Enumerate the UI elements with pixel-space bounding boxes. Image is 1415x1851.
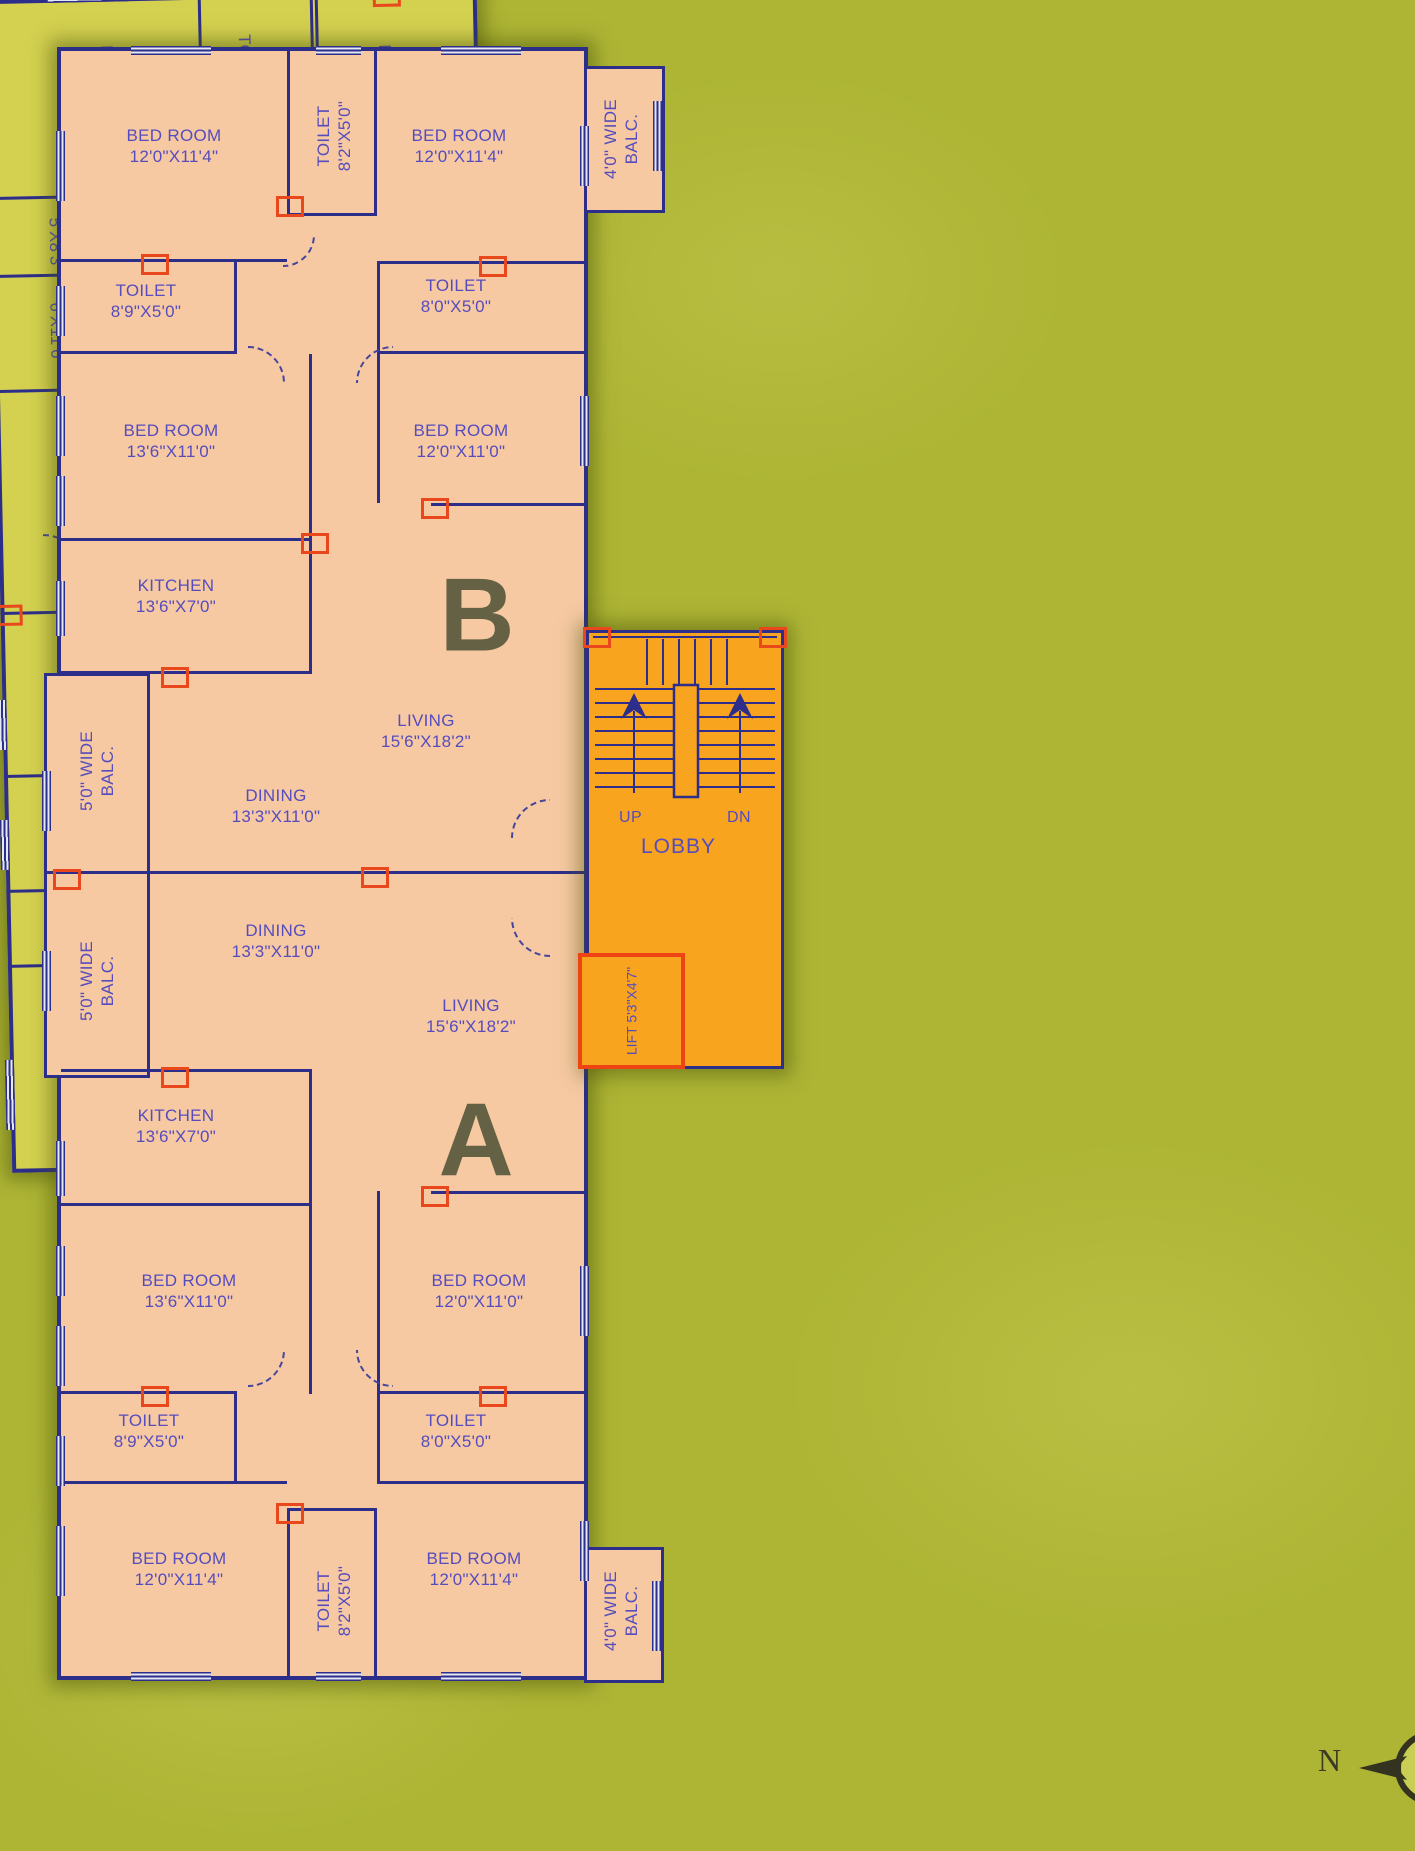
wall [61, 351, 234, 354]
room-label: BED ROOM12'0"X11'4" [427, 1548, 522, 1591]
room-label: BED ROOM13'6"X11'0" [142, 1270, 237, 1313]
room-label: BED ROOM12'0"X11'4" [127, 125, 222, 168]
window-icon [56, 1526, 65, 1596]
wall [47, 871, 584, 874]
lift-label: LIFT 5'3"X4'7" [623, 967, 640, 1055]
room-label: 5'0" WIDEBALC. [76, 731, 119, 811]
window-icon [56, 1246, 65, 1296]
window-icon [0, 820, 10, 870]
window-icon [56, 396, 65, 456]
window-icon [56, 1141, 65, 1196]
window-icon [316, 1672, 361, 1681]
stairs-up-label: UP [619, 809, 642, 827]
window-icon [0, 700, 7, 750]
door-swing-icon [211, 1313, 285, 1387]
door-swing-icon [211, 346, 285, 420]
wall [61, 538, 311, 541]
room-label: BED ROOM13'6"X11'0" [124, 420, 219, 463]
window-icon [5, 1060, 15, 1130]
wall [61, 1203, 311, 1206]
window-icon [56, 286, 65, 336]
wall [431, 503, 584, 506]
window-icon [56, 1326, 65, 1386]
column-marker [361, 867, 389, 888]
window-icon [441, 1672, 521, 1681]
room-label: 5'0" WIDEBALC. [76, 941, 119, 1021]
column-marker [276, 1503, 304, 1524]
wall [309, 1069, 312, 1394]
staircase-icon [589, 633, 781, 808]
window-icon [580, 1521, 589, 1581]
window-icon [580, 396, 589, 466]
wall [374, 51, 377, 216]
room-label: LIVING15'6"X18'2" [426, 995, 516, 1038]
room-label: KITCHEN13'6"X7'0" [136, 1105, 216, 1148]
room-label: DINING13'3"X11'0" [232, 920, 321, 963]
door-swing-icon [511, 799, 589, 877]
north-label: N [1318, 1742, 1341, 1779]
room-label: TOILET8'0"X5'0" [421, 275, 491, 318]
room-label: 4'0" WIDEBALC. [600, 1571, 643, 1651]
window-icon [652, 1581, 661, 1651]
wall [377, 1481, 584, 1484]
window-icon [42, 771, 51, 831]
wall [377, 1191, 380, 1484]
window-icon [56, 581, 65, 636]
unit-letter-b: B [439, 557, 514, 676]
room-label: TOILET8'9"X5'0" [111, 280, 181, 323]
lift-shaft: LIFT 5'3"X4'7" [578, 953, 685, 1069]
column-marker [301, 533, 329, 554]
column-marker [141, 254, 169, 275]
wall [309, 354, 312, 674]
column-marker [759, 627, 787, 648]
room-label: LIVING15'6"X18'2" [381, 710, 471, 753]
room-label: TOILET8'9"X5'0" [114, 1410, 184, 1453]
column-marker [161, 1067, 189, 1088]
wall [61, 259, 287, 262]
wall [374, 1508, 377, 1676]
column-marker [161, 667, 189, 688]
window-icon [131, 1672, 211, 1681]
window-icon [56, 476, 65, 526]
column-marker [0, 605, 23, 627]
window-icon [316, 46, 361, 55]
room-label: BED ROOM12'0"X11'4" [412, 125, 507, 168]
room-label: BED ROOM12'0"X11'4" [132, 1548, 227, 1591]
window-icon [56, 1436, 65, 1486]
north-compass-icon [1355, 1690, 1415, 1840]
room-label: TOILET8'2"X5'0" [313, 1566, 356, 1636]
room-label: 4'0" WIDEBALC. [600, 99, 643, 179]
door-swing-icon [356, 346, 430, 420]
unit-letter-a: A [438, 1082, 513, 1201]
stairs-down-label: DN [727, 809, 751, 827]
column-marker [583, 627, 611, 648]
floor-plan: BED ROOM12'0"X11'4"TOILET8'2"X5'0"BED RO… [0, 0, 1415, 1851]
column-marker [479, 1386, 507, 1407]
room-label: KITCHEN13'6"X7'0" [136, 575, 216, 618]
window-icon [441, 46, 521, 55]
window-icon [580, 1266, 589, 1336]
window-icon [653, 101, 662, 171]
window-icon [56, 131, 65, 201]
room-label: BED ROOM12'0"X11'0" [414, 420, 509, 463]
window-icon [42, 951, 51, 1011]
lobby-label: LOBBY [641, 835, 716, 859]
window-icon [131, 46, 211, 55]
wall [234, 1391, 237, 1484]
column-marker [141, 1386, 169, 1407]
column-marker [53, 869, 81, 890]
column-marker [276, 196, 304, 217]
wall [377, 351, 584, 354]
room-label: DINING13'3"X11'0" [232, 785, 321, 828]
door-swing-icon [511, 879, 589, 957]
wall [61, 1481, 287, 1484]
column-marker [421, 498, 449, 519]
room-label: TOILET8'0"X5'0" [421, 1410, 491, 1453]
wall [234, 261, 237, 354]
column-marker [373, 0, 401, 7]
door-swing-icon [356, 1313, 430, 1387]
room-label: BED ROOM12'0"X11'0" [432, 1270, 527, 1313]
wall [287, 51, 290, 216]
wall [287, 1508, 290, 1676]
building-units-a-b: BED ROOM12'0"X11'4"TOILET8'2"X5'0"BED RO… [57, 47, 588, 1680]
room-label: TOILET8'2"X5'0" [313, 101, 356, 171]
window-icon [580, 126, 589, 186]
